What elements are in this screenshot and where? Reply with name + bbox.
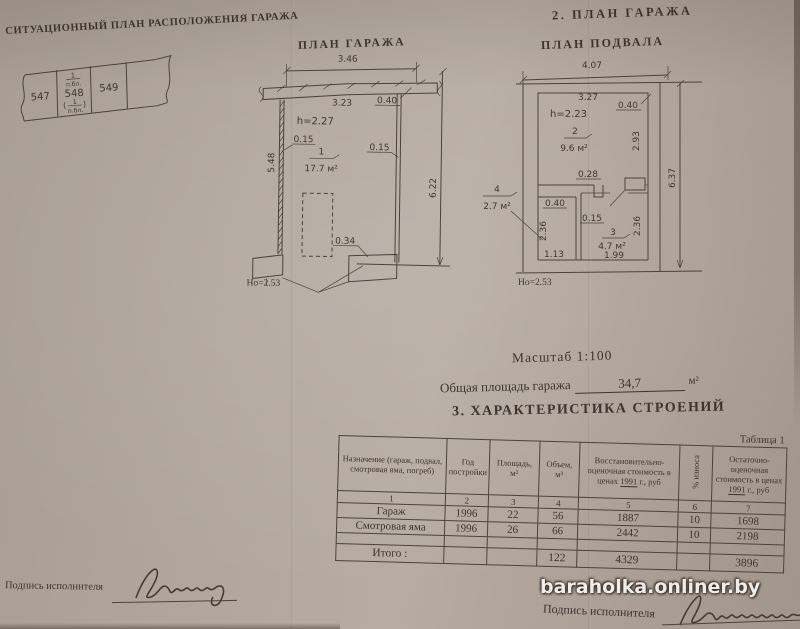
basement-dim-room3-height: 2.36 [633,216,643,236]
header-replacement-cost-unit: г., руб [639,477,661,488]
plot-548-group: 1 п.бл. 548 ( 1 п.бл. ) [61,71,87,116]
cell-empty [487,548,537,566]
basement-dim-corner: 0.40 [618,101,638,111]
col-num: 6 [678,500,711,513]
basement-room2-label: 2 9.6 м² [560,127,592,154]
basement-room4-label: 4 2.7 м² [483,185,543,240]
garage-base-height: Но=2.53 [246,278,280,288]
col-num: 4 [538,496,578,509]
executor-signature-label-right: Подпись исполнителя [543,602,656,622]
garage-dim-side-left: 5.48 [267,152,277,172]
basement-plan-drawing: 4.07 6.37 3.27 0.40 h=2.23 [470,50,800,295]
plot-number-549: 549 [99,82,119,94]
basement-room3-number: 3 [610,228,616,238]
document-photo: СИТУАЦИОННЫЙ ПЛАН РАСПОЛОЖЕНИЯ ГАРАЖА 54… [0,0,800,629]
situational-plan-diagram: 547 549 1 п.бл. 548 ( 1 п.бл. ) [8,52,191,148]
header-residual-cost-year: 1991 [728,484,745,495]
header-replacement-cost-year: 1991 [620,476,637,487]
cell-volume: 66 [537,523,577,539]
paren-close: ) [83,100,87,109]
cell-year: 1996 [444,520,487,536]
basement-dim-stub: 0.28 [578,170,598,180]
situational-plan-title: СИТУАЦИОННЫЙ ПЛАН РАСПОЛОЖЕНИЯ ГАРАЖА [5,11,299,37]
basement-partition-dimension: 0.15 [580,214,604,224]
cell-total-residual: 3896 [710,554,784,573]
basement-dim-partition: 0.15 [582,214,602,224]
garage-footings [252,252,450,294]
garage-room-area: 17.7 м² [304,164,338,174]
cell-wear: 10 [677,527,710,543]
basement-room4-area: 2.7 м² [483,202,511,212]
characteristics-table: Назначение (гараж, подвал, смотровая яма… [335,435,787,573]
basement-room2-number: 2 [572,127,578,137]
garage-room-label: 1 17.7 м² [304,147,339,174]
garage-pier-dimension: 0.34 [333,237,368,257]
fraction-bottom-denominator: п.бл. [68,107,84,115]
inspection-pit-outline [302,193,333,256]
characteristics-table-block: Таблица 1 Назначение (гараж, подвал, смо… [335,423,791,574]
garage-plan-drawing: 3.46 3.23 0.40 h=2.27 0.15 5.48 0.15 [244,40,488,318]
cell-empty [677,553,710,571]
garage-left-wall-dimension: 0.15 [284,135,315,150]
total-area-value: 34,7 [574,374,684,394]
basement-section-title: 2. ПЛАН ГАРАЖА [552,4,693,24]
basement-corner-dimension: 0.40 [616,94,651,111]
header-replacement-cost: Восстановительно-оценочная стоимость в ц… [579,442,680,500]
basement-dim-wall: 0.40 [545,199,565,209]
fraction-top-numerator: 1 [71,71,76,79]
garage-ceiling-height: h=2.27 [297,116,334,128]
cell-total-label: Итого : [336,543,444,563]
cell-wear: 10 [678,512,711,528]
garage-right-wall-dimension: 0.15 [367,143,398,157]
header-residual-cost-text: Остаточно-оценочная стоимость в ценах [716,454,783,486]
parcel-strip-outline [18,56,175,122]
cell-total-cost: 4329 [577,550,677,570]
garage-right-wall [395,93,401,262]
header-year-built: Год постройки [446,439,491,495]
basement-room3-label: 3 4.7 м² [598,228,630,252]
cell-year: 1996 [445,505,488,521]
plot-number-547: 547 [30,91,50,103]
basement-room4-number: 4 [494,185,500,195]
paren-open: ( [63,101,67,110]
basement-right-dimension: 6.37 [668,80,684,268]
garage-right-dimension: 6.22 [428,68,447,265]
basement-room2-area: 9.6 м² [560,144,588,154]
basement-top-dimension: 4.07 [520,61,671,84]
executor-signature-left [128,558,243,610]
executor-signature-label-left: Подпись исполнителя [5,580,103,593]
cell-area: 22 [488,507,538,523]
basement-base-height: Но=2.53 [518,278,552,288]
executor-signature-right [676,585,800,629]
cell-total-volume: 122 [537,549,577,567]
total-area-label: Общая площадь гаража [440,377,571,395]
paper-edge-bottom [0,623,340,629]
basement-dim-top-width: 4.07 [582,61,602,71]
basement-dim-room2-height: 2.93 [632,131,642,151]
cell-volume: 56 [538,508,578,524]
basement-dim-room4-width: 1.13 [544,250,564,260]
header-residual-cost-unit: г., руб [747,485,769,496]
cell-empty [677,542,710,554]
fraction-bottom-numerator: 1 [72,98,77,106]
garage-dim-side-right: 6.22 [429,178,439,198]
garage-dim-top-width: 3.46 [338,55,358,65]
garage-left-wall [278,100,284,254]
header-wear-percent: % износа [678,445,713,501]
cell-area: 26 [487,522,537,538]
basement-wall-dimension: 0.40 [543,199,567,209]
characteristics-section-title: 3. ХАРАКТЕРИСТИКА СТРОЕНИЙ [452,400,726,421]
garage-corner-dimension: 0.40 [375,87,411,107]
basement-dim-side-right: 6.37 [668,168,678,188]
basement-stub-dimension: 0.28 [576,170,601,180]
garage-room-number: 1 [318,147,324,157]
cell-empty [444,546,487,564]
total-area-line: Общая площадь гаража34,7м² [440,374,699,398]
basement-dim-room3-width: 1.99 [604,251,624,261]
header-residual-cost: Остаточно-оценочная стоимость в ценах 19… [711,446,787,503]
basement-dim-room4-height: 2.36 [539,221,549,241]
header-purpose: Назначение (гараж, подвал, смотровая яма… [338,436,447,494]
total-area-unit: м² [688,375,699,387]
garage-dim-inner-width: 3.23 [332,99,352,109]
header-volume: Объем, м³ [539,441,581,497]
header-wear-percent-text: % износа [691,455,700,489]
basement-dim-inner-width: 3.27 [578,93,598,103]
basement-ceiling-height: h=2.23 [550,109,587,120]
scale-label: Масштаб 1:100 [512,348,613,367]
header-area: Площадь, м² [489,440,541,496]
